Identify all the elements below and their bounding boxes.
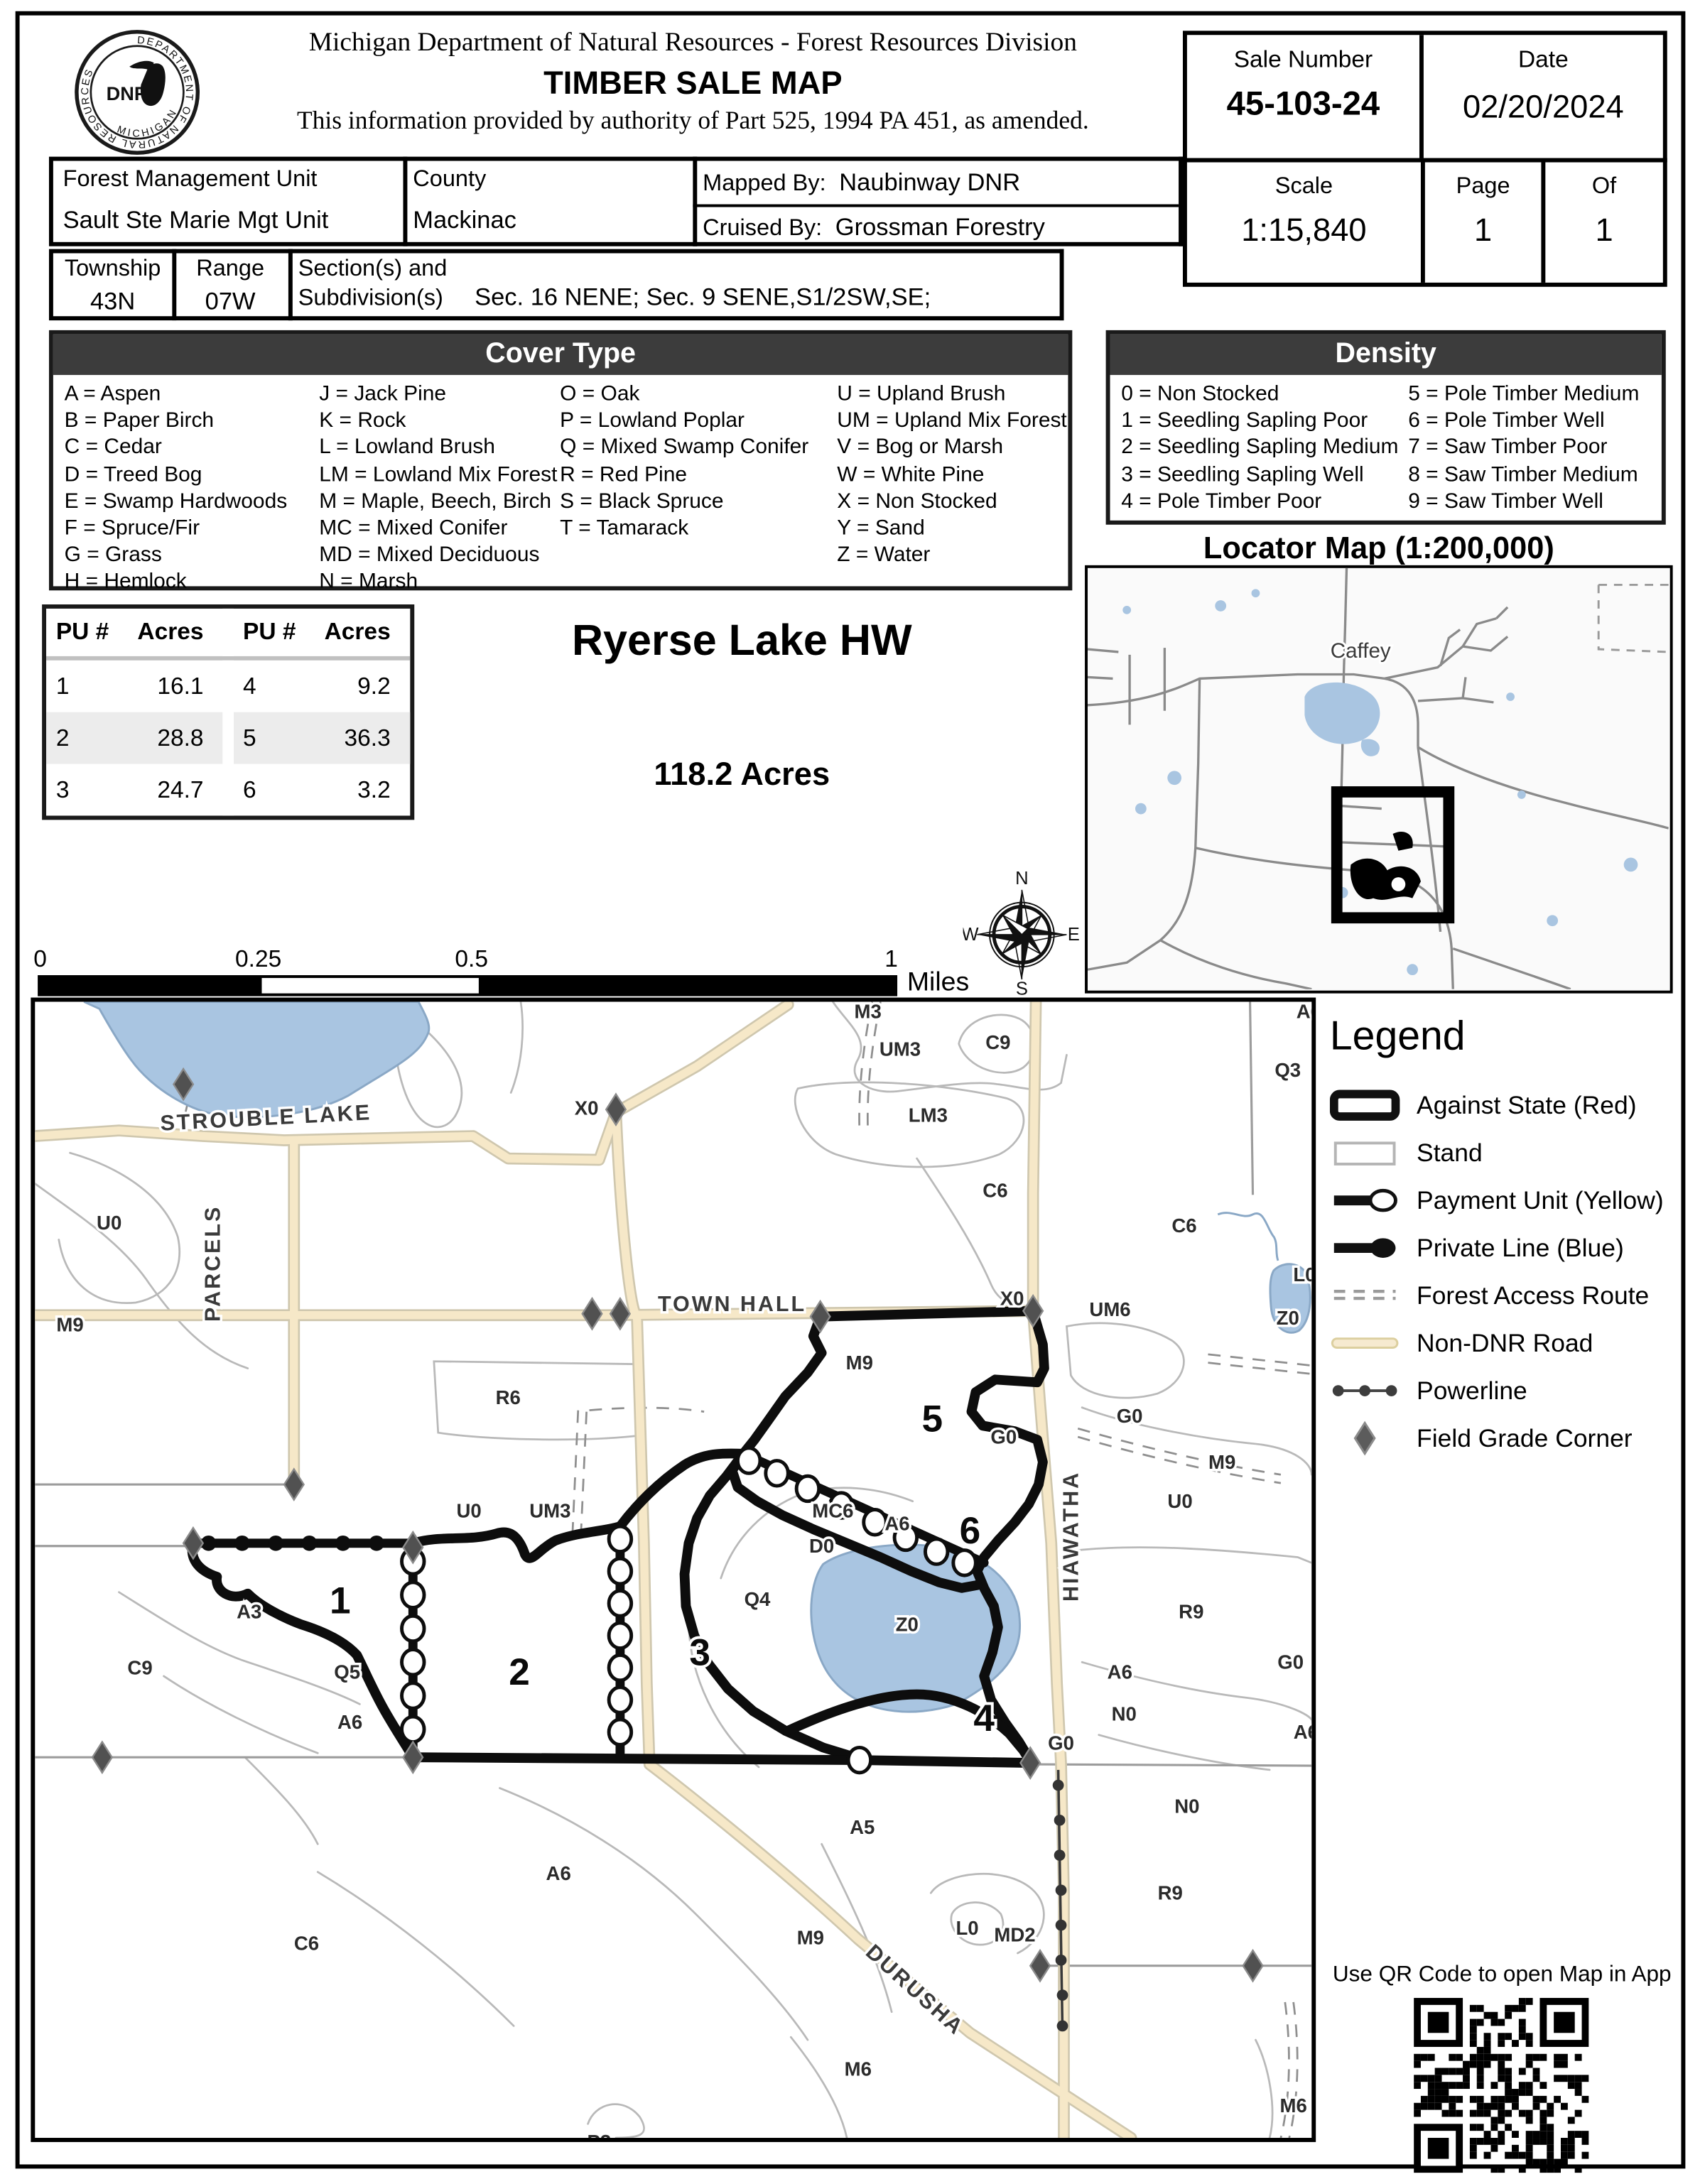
pu-table-cell: 3 <box>46 776 119 803</box>
fmu-box: Forest Management Unit Sault Ste Marie M… <box>49 157 407 246</box>
legend-entry: J = Jack Pine <box>319 381 557 408</box>
legend-item-against-state: Against State (Red) <box>1319 1082 1685 1129</box>
cover-type-label: LM3 <box>909 1104 948 1126</box>
svg-text:W: W <box>963 925 980 945</box>
cruised-by-label: Cruised By: <box>703 215 822 240</box>
legend-entry: W = White Pine <box>837 461 1066 488</box>
range-box: Range 07W <box>172 249 292 320</box>
cover-type-label: G0 <box>990 1425 1017 1447</box>
density-panel: Density 0 = Non Stocked1 = Seedling Sapl… <box>1106 330 1666 525</box>
pu-table-cell: 2 <box>46 724 119 751</box>
legend-entry: UM = Upland Mix Forest <box>837 408 1066 435</box>
payment-unit-number: 2 <box>509 1651 530 1693</box>
total-acres: 118.2 Acres <box>560 756 924 793</box>
cover-type-label: M3 <box>854 1001 881 1022</box>
against-state-icon <box>1330 1087 1402 1124</box>
non-dnr-road-icon <box>1330 1325 1402 1361</box>
cover-type-label: R9 <box>1158 1882 1183 1904</box>
page-title: TIMBER SALE MAP <box>210 65 1176 102</box>
timber-sale-map-page: DEPARTMENT OF NATURAL RESOURCES MICHIGAN… <box>0 0 1705 2184</box>
fmu-value: Sault Ste Marie Mgt Unit <box>63 206 404 235</box>
cover-type-col-2: J = Jack PineK = RockL = Lowland BrushLM… <box>319 381 557 596</box>
legend-entry: 4 = Pole Timber Poor <box>1121 488 1398 515</box>
legend-entry: 2 = Seedling Sapling Medium <box>1121 434 1398 461</box>
cover-type-label: M6 <box>1279 2095 1306 2117</box>
scale-bar: 0 0.25 0.5 1 Miles <box>31 946 1010 994</box>
svg-text:N: N <box>1015 870 1029 889</box>
field-grade-corners <box>92 1069 1262 1981</box>
cover-type-label: MC6 <box>812 1500 853 1522</box>
cover-type-label: C6 <box>983 1180 1007 1202</box>
scale-unit-label: Miles <box>907 968 969 999</box>
cover-type-label: U0 <box>1167 1490 1192 1512</box>
pu-table-cell: 16.1 <box>119 673 223 700</box>
legend-entry: C = Cedar <box>65 434 288 461</box>
pu-table-header: PU #AcresPU #Acres <box>46 609 410 661</box>
payment-unit-number: 5 <box>921 1398 943 1440</box>
township-box: Township 43N <box>49 249 176 320</box>
cover-type-label: D0 <box>809 1535 834 1557</box>
date-value: 02/20/2024 <box>1424 88 1663 126</box>
cover-type-label: A6 <box>337 1711 362 1733</box>
legend-entry: P = Lowland Poplar <box>560 408 808 435</box>
legend-item-label: Field Grade Corner <box>1417 1424 1633 1453</box>
fmu-label: Forest Management Unit <box>63 166 404 192</box>
of-value: 1 <box>1545 211 1663 249</box>
sections-label-2: Subdivision(s) <box>298 286 443 310</box>
sections-value: Sec. 16 NENE; Sec. 9 SENE,S1/2SW,SE; <box>475 283 931 310</box>
pu-table-row: 116.149.2 <box>46 661 410 712</box>
cover-type-label: A5 <box>850 1816 875 1838</box>
legend-item-forest-access-route: Forest Access Route <box>1319 1272 1685 1320</box>
density-title: Density <box>1110 335 1662 375</box>
payment-unit-number: 6 <box>960 1510 981 1552</box>
cover-type-label: N0 <box>1112 1702 1137 1724</box>
cruised-by-value: Grossman Forestry <box>835 212 1045 240</box>
locator-dashed-boundary <box>1598 585 1669 652</box>
mapped-by-label: Mapped By: <box>703 170 826 195</box>
scale-tick-025: 0.25 <box>235 946 281 974</box>
range-label: Range <box>172 256 288 282</box>
legend-items: Against State (Red)StandPayment Unit (Ye… <box>1319 1082 1685 1501</box>
legend-panel: Legend Against State (Red)StandPayment U… <box>1319 998 1685 2142</box>
pu-table-header-cell: PU # <box>233 619 305 646</box>
cover-type-label: G0 <box>1277 1651 1304 1673</box>
cover-type-label: M9 <box>797 1927 824 1949</box>
legend-entry: A = Aspen <box>65 381 288 408</box>
pu-table-row: 324.763.2 <box>46 764 410 816</box>
private-line-icon <box>1330 1230 1402 1266</box>
legend-entry: 3 = Seedling Sapling Well <box>1121 461 1398 488</box>
sections-label-1: Section(s) and <box>298 256 1060 282</box>
pu-table-header-cell: Acres <box>305 619 410 646</box>
pu-table-header-cell: PU # <box>46 619 119 646</box>
legend-entry: H = Hemlock <box>65 569 288 596</box>
legend-item-label: Non-DNR Road <box>1417 1329 1593 1358</box>
field-grade-corner-icon <box>1243 1950 1263 1981</box>
cover-type-label: A6 <box>1108 1661 1132 1683</box>
locator-place-label: Caffey <box>1331 639 1391 663</box>
legend-entry: U = Upland Brush <box>837 381 1066 408</box>
pu-table-row: 228.8536.3 <box>46 712 410 764</box>
pu-table-cell: 4 <box>233 673 305 700</box>
sale-number-value: 45-103-24 <box>1187 85 1419 124</box>
cover-type-label: L0 <box>956 1917 978 1939</box>
main-map: STROUBLE LAKETOWN HALLPARCELSHIAWATHADUR… <box>31 998 1316 2142</box>
cover-type-label: G0 <box>1117 1405 1143 1427</box>
legend-entry: 6 = Pole Timber Well <box>1408 408 1639 435</box>
cover-type-label: X0 <box>575 1097 599 1119</box>
legend-item-powerline: Powerline <box>1319 1367 1685 1415</box>
density-col-2: 5 = Pole Timber Medium6 = Pole Timber We… <box>1408 381 1639 515</box>
cover-type-label: U0 <box>456 1500 481 1522</box>
legend-item-label: Against State (Red) <box>1417 1092 1637 1121</box>
page-label: Page <box>1425 173 1542 200</box>
cover-type-label: L0 <box>1293 1264 1311 1286</box>
sections-box: Section(s) and Subdivision(s) Sec. 16 NE… <box>288 249 1064 320</box>
legend-item-label: Stand <box>1417 1139 1483 1168</box>
cover-type-label: C9 <box>127 1656 152 1678</box>
county-value: Mackinac <box>413 206 693 235</box>
cover-type-label: UM3 <box>529 1500 570 1522</box>
cover-type-label: N0 <box>1174 1795 1199 1817</box>
page-value: 1 <box>1425 211 1542 249</box>
legend-entry: E = Swamp Hardwoods <box>65 488 288 515</box>
pu-table-rows: 116.149.2228.8536.3324.763.2 <box>46 661 410 816</box>
cover-type-col-1: A = AspenB = Paper BirchC = CedarD = Tre… <box>65 381 288 596</box>
pu-table-cell: 5 <box>233 724 305 751</box>
legend-entry: X = Non Stocked <box>837 488 1066 515</box>
cover-type-title: Cover Type <box>53 335 1068 375</box>
road-name-label: PARCELS <box>201 1205 225 1322</box>
legend-entry: M = Maple, Beech, Birch <box>319 488 557 515</box>
payment-unit-number: 1 <box>330 1580 351 1622</box>
legend-title: Legend <box>1330 1014 1685 1060</box>
qr-caption: Use QR Code to open Map in App <box>1327 1963 1677 1988</box>
legend-entry: Z = Water <box>837 542 1066 569</box>
cover-type-label: A6 <box>1294 1721 1312 1743</box>
legend-entry: B = Paper Birch <box>65 408 288 435</box>
legend-entry: N = Marsh <box>319 569 557 596</box>
legend-entry: S = Black Spruce <box>560 488 808 515</box>
range-value: 07W <box>172 287 288 316</box>
payment-unit-number: 4 <box>973 1697 995 1739</box>
legend-entry: 7 = Saw Timber Poor <box>1408 434 1639 461</box>
stand-icon <box>1330 1135 1402 1171</box>
mapped-cruised-box: Mapped By: Naubinway DNR Cruised By: Gro… <box>693 157 1183 246</box>
legend-entry: F = Spruce/Fir <box>65 515 288 542</box>
legend-entry: LM = Lowland Mix Forest <box>319 461 557 488</box>
legend-entry: O = Oak <box>560 381 808 408</box>
of-label: Of <box>1545 173 1663 200</box>
powerline-icon <box>1330 1372 1402 1408</box>
cover-type-label: U0 <box>97 1212 121 1234</box>
payment-unit-number: 3 <box>689 1631 710 1673</box>
sale-title: Ryerse Lake HW <box>448 616 1036 666</box>
pu-table-cell: 28.8 <box>119 724 223 751</box>
legend-entry: 1 = Seedling Sapling Poor <box>1121 408 1398 435</box>
cover-type-label: C9 <box>985 1031 1010 1053</box>
county-box: County Mackinac <box>403 157 697 246</box>
pu-table-cell: 24.7 <box>119 776 223 803</box>
sale-date-box: Sale Number 45-103-24 Date 02/20/2024 <box>1183 31 1667 162</box>
township-value: 43N <box>53 287 172 316</box>
payment-unit-icon <box>1330 1183 1402 1219</box>
legend-item-field-grade-corner: Field Grade Corner <box>1319 1415 1685 1462</box>
legend-item-private-line: Private Line (Blue) <box>1319 1224 1685 1272</box>
authority-line: This information provided by authority o… <box>210 107 1176 136</box>
locator-title: Locator Map (1:200,000) <box>1085 531 1673 567</box>
cover-type-label: Q4 <box>745 1588 771 1610</box>
cover-type-label: MD2 <box>994 1924 1035 1946</box>
cover-type-label: R6 <box>496 1386 521 1408</box>
dnr-logo: DEPARTMENT OF NATURAL RESOURCES MICHIGAN… <box>72 28 201 156</box>
scale-tick-05: 0.5 <box>455 946 488 974</box>
road-name-label: HIAWATHA <box>1059 1471 1083 1602</box>
field-grade-corner-icon <box>183 1528 203 1558</box>
pu-table: PU #AcresPU #Acres 116.149.2228.8536.332… <box>42 604 414 820</box>
strouble-lake <box>84 1001 429 1117</box>
scale-bar-strip <box>38 975 897 996</box>
cover-type-label: A6 <box>1297 1001 1312 1022</box>
cover-type-label: M9 <box>846 1352 873 1374</box>
cover-type-label: M9 <box>1208 1451 1235 1473</box>
pu-table-cell: 1 <box>46 673 119 700</box>
legend-entry: MD = Mixed Deciduous <box>319 542 557 569</box>
county-label: County <box>413 166 693 192</box>
cover-type-label: M6 <box>845 2058 872 2080</box>
cover-type-label: Q3 <box>1274 1059 1301 1081</box>
locator-map: Caffey <box>1085 565 1673 994</box>
field-grade-corner-icon <box>92 1742 112 1773</box>
cover-type-col-3: O = OakP = Lowland PoplarQ = Mixed Swamp… <box>560 381 808 542</box>
legend-entry: D = Treed Bog <box>65 461 288 488</box>
locator-lake-dot <box>1392 877 1406 891</box>
stand-boundaries <box>35 1001 1311 2138</box>
cover-type-label: R9 <box>1179 1601 1203 1623</box>
legend-item-label: Private Line (Blue) <box>1417 1234 1624 1263</box>
legend-entry: 8 = Saw Timber Medium <box>1408 461 1639 488</box>
field-grade-corner-icon <box>1330 1420 1402 1456</box>
field-grade-corner-icon <box>284 1469 304 1499</box>
pu-table-cell: 9.2 <box>305 673 410 700</box>
pu-table-header-cell: Acres <box>119 619 223 646</box>
cover-type-label: UM3 <box>879 1038 921 1060</box>
scale-tick-0: 0 <box>33 946 47 974</box>
legend-entry: G = Grass <box>65 542 288 569</box>
cover-type-panel: Cover Type A = AspenB = Paper BirchC = C… <box>49 330 1072 590</box>
forest-access-route-icon <box>1330 1278 1402 1314</box>
compass-rose-icon: NESW <box>963 870 1081 999</box>
cover-type-label: Z0 <box>896 1613 919 1635</box>
cover-type-label: C6 <box>294 1932 319 1954</box>
sale-number-label: Sale Number <box>1187 46 1419 74</box>
cover-type-label: M9 <box>56 1314 83 1336</box>
road-name-label: DURUSHA <box>861 1940 969 2040</box>
legend-entry: L = Lowland Brush <box>319 434 557 461</box>
legend-entry: Q = Mixed Swamp Conifer <box>560 434 808 461</box>
legend-entry: R = Red Pine <box>560 461 808 488</box>
legend-item-non-dnr-road: Non-DNR Road <box>1319 1320 1685 1367</box>
svg-text:E: E <box>1068 925 1080 945</box>
svg-text:S: S <box>1016 979 1028 999</box>
legend-item-label: Payment Unit (Yellow) <box>1417 1186 1664 1215</box>
cover-type-label: P3 <box>587 2131 611 2138</box>
legend-entry: K = Rock <box>319 408 557 435</box>
density-col-1: 0 = Non Stocked1 = Seedling Sapling Poor… <box>1121 381 1398 515</box>
cover-type-col-4: U = Upland BrushUM = Upland Mix ForestV … <box>837 381 1066 569</box>
qr-code <box>1414 1998 1588 2173</box>
legend-item-label: Forest Access Route <box>1417 1281 1649 1310</box>
cover-type-label: A3 <box>237 1601 261 1623</box>
cover-type-label: A6 <box>884 1512 909 1534</box>
cover-type-label: UM6 <box>1089 1298 1130 1320</box>
stream <box>1218 1213 1278 1261</box>
agency-line: Michigan Department of Natural Resources… <box>210 28 1176 58</box>
legend-entry: Y = Sand <box>837 515 1066 542</box>
pu-table-cell: 36.3 <box>305 724 410 751</box>
field-grade-corner-icon <box>1030 1950 1050 1981</box>
scale-tick-1: 1 <box>884 946 898 974</box>
section-lines <box>35 1001 1311 1965</box>
legend-item-payment-unit: Payment Unit (Yellow) <box>1319 1177 1685 1224</box>
legend-entry: V = Bog or Marsh <box>837 434 1066 461</box>
cover-type-label: X0 <box>1000 1287 1024 1309</box>
scale-value: 1:15,840 <box>1187 211 1421 249</box>
legend-entry: T = Tamarack <box>560 515 808 542</box>
field-grade-corner-icon <box>583 1298 602 1329</box>
cover-type-label: A6 <box>546 1862 571 1884</box>
cover-type-label: G0 <box>1048 1732 1074 1754</box>
legend-item-stand: Stand <box>1319 1129 1685 1177</box>
legend-entry: 5 = Pole Timber Medium <box>1408 381 1639 408</box>
cover-type-label: Z0 <box>1277 1307 1299 1329</box>
cover-type-label: C6 <box>1171 1215 1196 1237</box>
date-label: Date <box>1424 46 1663 74</box>
pu-table-cell: 3.2 <box>305 776 410 803</box>
township-label: Township <box>53 256 172 282</box>
scale-label: Scale <box>1187 173 1421 200</box>
mapped-by-value: Naubinway DNR <box>839 168 1020 195</box>
road-name-label: TOWN HALL <box>658 1292 806 1316</box>
legend-item-label: Powerline <box>1417 1376 1527 1406</box>
cover-type-label: Q5 <box>334 1661 360 1683</box>
pu-table-cell: 6 <box>233 776 305 803</box>
legend-entry: 0 = Non Stocked <box>1121 381 1398 408</box>
legend-entry: MC = Mixed Conifer <box>319 515 557 542</box>
scale-page-box: Scale 1:15,840 Page 1 Of 1 <box>1183 158 1667 287</box>
legend-entry: 9 = Saw Timber Well <box>1408 488 1639 515</box>
